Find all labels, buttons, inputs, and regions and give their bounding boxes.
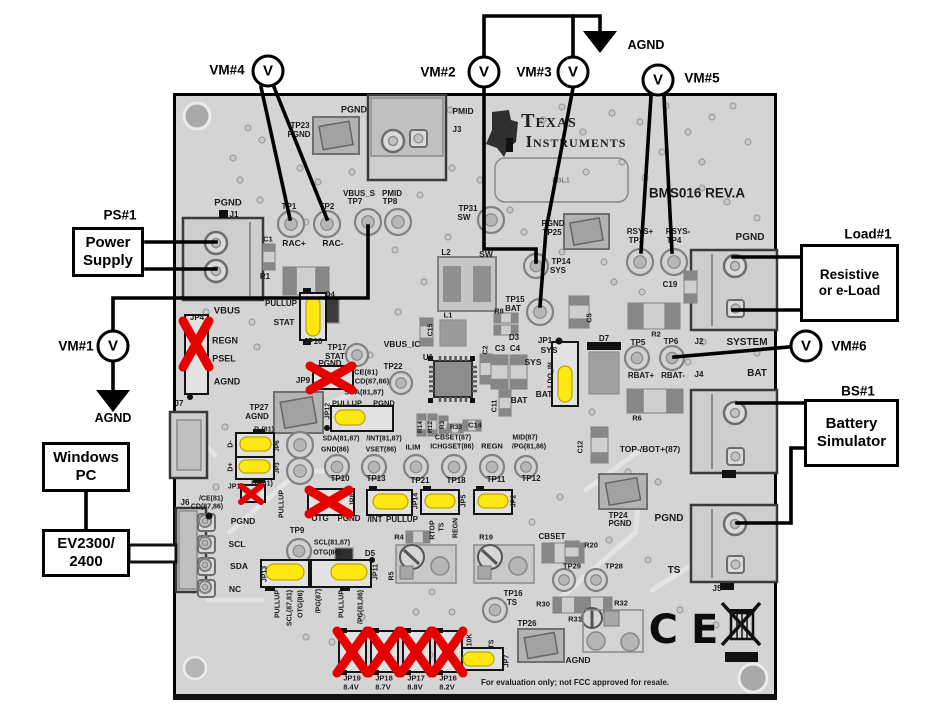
load1-line1: Resistive [820, 267, 879, 283]
power-supply-tag: PS#1 [103, 208, 136, 223]
bs1-line2: Simulator [817, 433, 886, 451]
ps1-line1: Power [85, 234, 130, 252]
voltmeter-label: VM#4 [209, 63, 244, 78]
voltmeter-symbol: V [97, 330, 130, 363]
ground-arrow [583, 31, 617, 53]
voltmeter-symbol: V [252, 55, 285, 88]
agnd-label-left: AGND [95, 411, 132, 425]
agnd-label-top: AGND [628, 38, 665, 52]
windows-pc-box: Windows PC [42, 442, 130, 492]
load1-line2: or e-Load [819, 283, 881, 299]
evm-board [173, 93, 777, 700]
ev2300-box: EV2300/ 2400 [42, 529, 130, 577]
ground-arrow [96, 390, 130, 412]
voltmeter-label: VM#1 [58, 339, 93, 354]
battery-simulator-box: Battery Simulator [804, 399, 899, 467]
voltmeter-label: VM#2 [420, 65, 455, 80]
pc-line2: PC [76, 467, 97, 485]
connector-plug [129, 545, 176, 562]
ps1-line2: Supply [83, 252, 133, 270]
voltmeter-symbol: V [642, 64, 675, 97]
bms016-evm-connection-diagram: PGNDTP23PGNDPMIDJ3BMS016 REV.APGNDJ1TP1T… [0, 0, 947, 710]
power-supply-box: Power Supply [72, 227, 144, 277]
ev-line1: EV2300/ [57, 535, 115, 553]
pc-line1: Windows [53, 449, 119, 467]
bs1-line1: Battery [826, 415, 878, 433]
voltmeter-label: VM#5 [684, 71, 719, 86]
voltmeter-symbol: V [790, 330, 823, 363]
battery-simulator-tag: BS#1 [841, 384, 875, 399]
voltmeter-symbol: V [557, 56, 590, 89]
voltmeter-label: VM#6 [831, 339, 866, 354]
load-box: Resistive or e-Load [800, 244, 899, 322]
voltmeter-symbol: V [468, 56, 501, 89]
hookup-wire [484, 16, 600, 56]
load-tag: Load#1 [844, 227, 891, 242]
voltmeter-label: VM#3 [516, 65, 551, 80]
ev-line2: 2400 [69, 553, 102, 571]
